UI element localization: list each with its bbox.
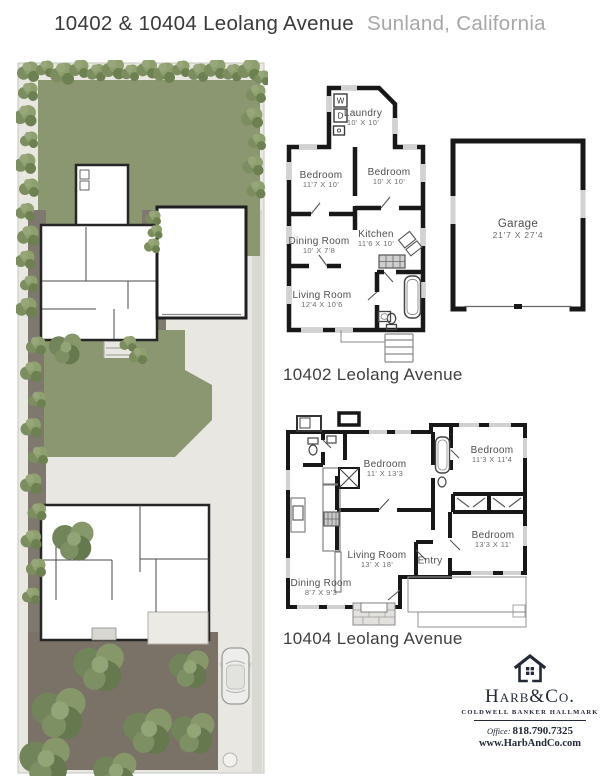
- title-location: Sunland, California: [367, 12, 546, 35]
- room-label-entry: Entry: [418, 555, 443, 566]
- title-address: 10402 & 10404 Leolang Avenue: [54, 12, 354, 35]
- closet-x: [339, 468, 359, 488]
- room-label-bedroom-bottom-right: Bedroom 13'3 X 11': [472, 530, 515, 550]
- room-dims: 13'3 X 11': [472, 541, 515, 549]
- fireplace: [353, 603, 395, 625]
- bathroom-fixtures: [379, 276, 421, 330]
- room-dims: 11' X 13'3: [364, 470, 407, 478]
- room-label-garage: Garage 21'7 X 27'4: [493, 218, 544, 240]
- phone-number: 818.790.7325: [513, 725, 574, 737]
- floor-plan-garage: Garage 21'7 X 27'4: [448, 134, 588, 316]
- room-dims: 12'4 X 10'6: [293, 301, 352, 309]
- room-label-bedroom-center: Bedroom 11' X 13'3: [364, 459, 407, 479]
- car: [220, 648, 252, 704]
- site-fireplace: [92, 628, 116, 640]
- room-dims: 11'6 X 10': [358, 240, 394, 248]
- room-name: Garage: [493, 218, 544, 231]
- kitchen-fixtures: [291, 468, 341, 592]
- floor-plan-10402: W D La: [283, 76, 428, 376]
- room-name: Entry: [418, 555, 443, 566]
- house-icon: [511, 652, 549, 684]
- room-dims: 11'3 X 11'4: [471, 456, 514, 464]
- sidewalk-strip: [252, 210, 262, 773]
- room-label-living: Living Room 13' X 18': [348, 550, 407, 570]
- brokerage-logo: Harb&Co. Coldwell Banker Hallmark Office…: [452, 652, 600, 749]
- room-label-bedroom-right: Bedroom 10' X 10': [368, 167, 411, 187]
- washer-label: W: [337, 97, 345, 106]
- brokerage-name: Harb&Co.: [452, 686, 600, 708]
- room-dims: 11'7 X 10': [300, 181, 343, 189]
- site-plan: [16, 60, 268, 776]
- room-label-bedroom-top-right: Bedroom 11'3 X 11'4: [471, 445, 514, 465]
- site-garage: [157, 207, 246, 318]
- office-phone: Office:818.790.7325: [452, 725, 600, 737]
- furnace-bump: [339, 413, 359, 425]
- dryer-label: D: [338, 112, 344, 121]
- caption-10402: 10402 Leolang Avenue: [283, 365, 463, 385]
- brokerage-subtitle: Coldwell Banker Hallmark: [452, 709, 600, 716]
- page-title: 10402 & 10404 Leolang Avenue Sunland, Ca…: [0, 12, 600, 36]
- floor-plan-10404: Bedroom 11' X 13'3 Bedroom 11'3 X 11'4 B…: [283, 410, 533, 640]
- caption-10404: 10404 Leolang Avenue: [283, 629, 463, 649]
- front-porch: [408, 577, 526, 627]
- room-dims: 21'7 X 27'4: [493, 231, 544, 241]
- logo-divider: [474, 720, 586, 721]
- room-dims: 10' X 10': [344, 119, 382, 127]
- room-label-kitchen: Kitchen 11'6 X 10': [358, 229, 394, 249]
- room-label-dining: Dining Room 8'7 X 9'3: [290, 578, 351, 598]
- room-dims: 8'7 X 9'3: [290, 589, 351, 597]
- room-label-laundry: Laundry 10' X 10': [344, 108, 382, 128]
- website: www.HarbAndCo.com: [452, 738, 600, 749]
- room-dims: 13' X 18': [348, 561, 407, 569]
- office-label: Office:: [487, 726, 511, 736]
- yard-feature: [223, 753, 237, 767]
- room-dims: 10' X 7'8: [288, 247, 349, 255]
- room-label-bedroom-left: Bedroom 11'7 X 10': [300, 170, 343, 190]
- porch-steps: [341, 330, 413, 362]
- room-label-living: Living Room 12'4 X 10'6: [293, 290, 352, 310]
- room-label-dining: Dining Room 10' X 7'8: [288, 236, 349, 256]
- flyer-page: 10402 & 10404 Leolang Avenue Sunland, Ca…: [0, 0, 600, 777]
- room-dims: 10' X 10': [368, 178, 411, 186]
